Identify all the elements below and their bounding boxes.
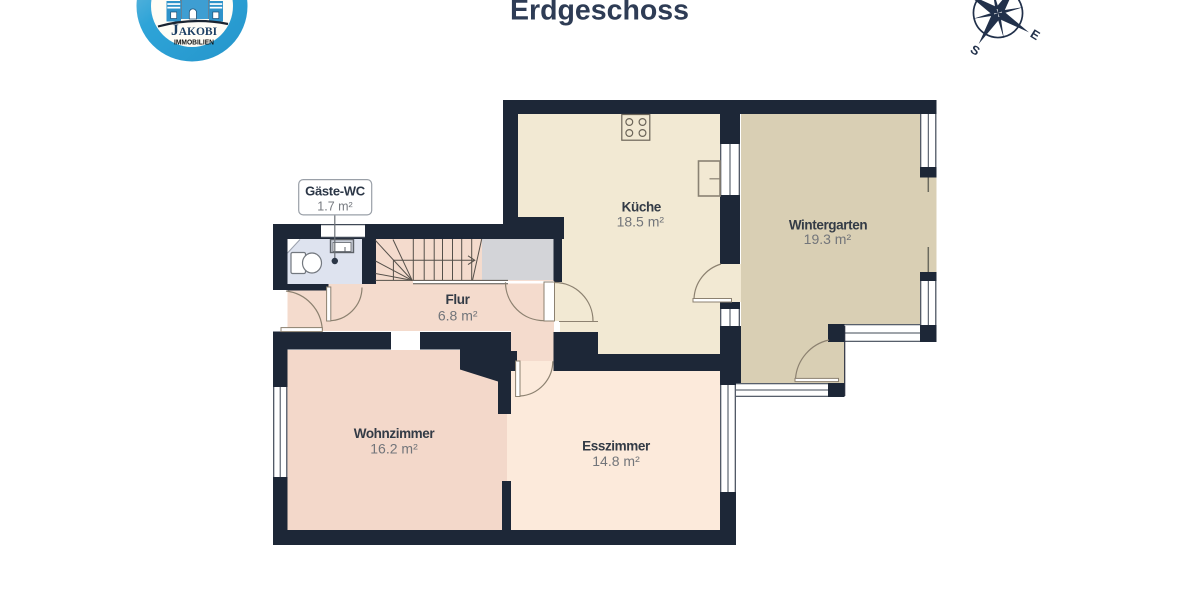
svg-text:Esszimmer: Esszimmer	[582, 439, 651, 454]
svg-text:Gäste-WC: Gäste-WC	[305, 183, 366, 198]
svg-text:14.8 m²: 14.8 m²	[592, 453, 640, 469]
svg-text:19.3 m²: 19.3 m²	[804, 231, 852, 247]
svg-text:IMMOBILIEN: IMMOBILIEN	[174, 38, 214, 47]
svg-text:1.7 m²: 1.7 m²	[317, 200, 352, 214]
svg-text:Küche: Küche	[622, 199, 662, 214]
svg-text:18.5 m²: 18.5 m²	[617, 214, 665, 230]
svg-text:6.8 m²: 6.8 m²	[438, 308, 478, 324]
svg-text:Wohnzimmer: Wohnzimmer	[354, 426, 436, 441]
svg-text:16.2 m²: 16.2 m²	[370, 441, 418, 457]
svg-text:Flur: Flur	[446, 292, 471, 307]
svg-text:Erdgeschoss: Erdgeschoss	[510, 0, 689, 27]
